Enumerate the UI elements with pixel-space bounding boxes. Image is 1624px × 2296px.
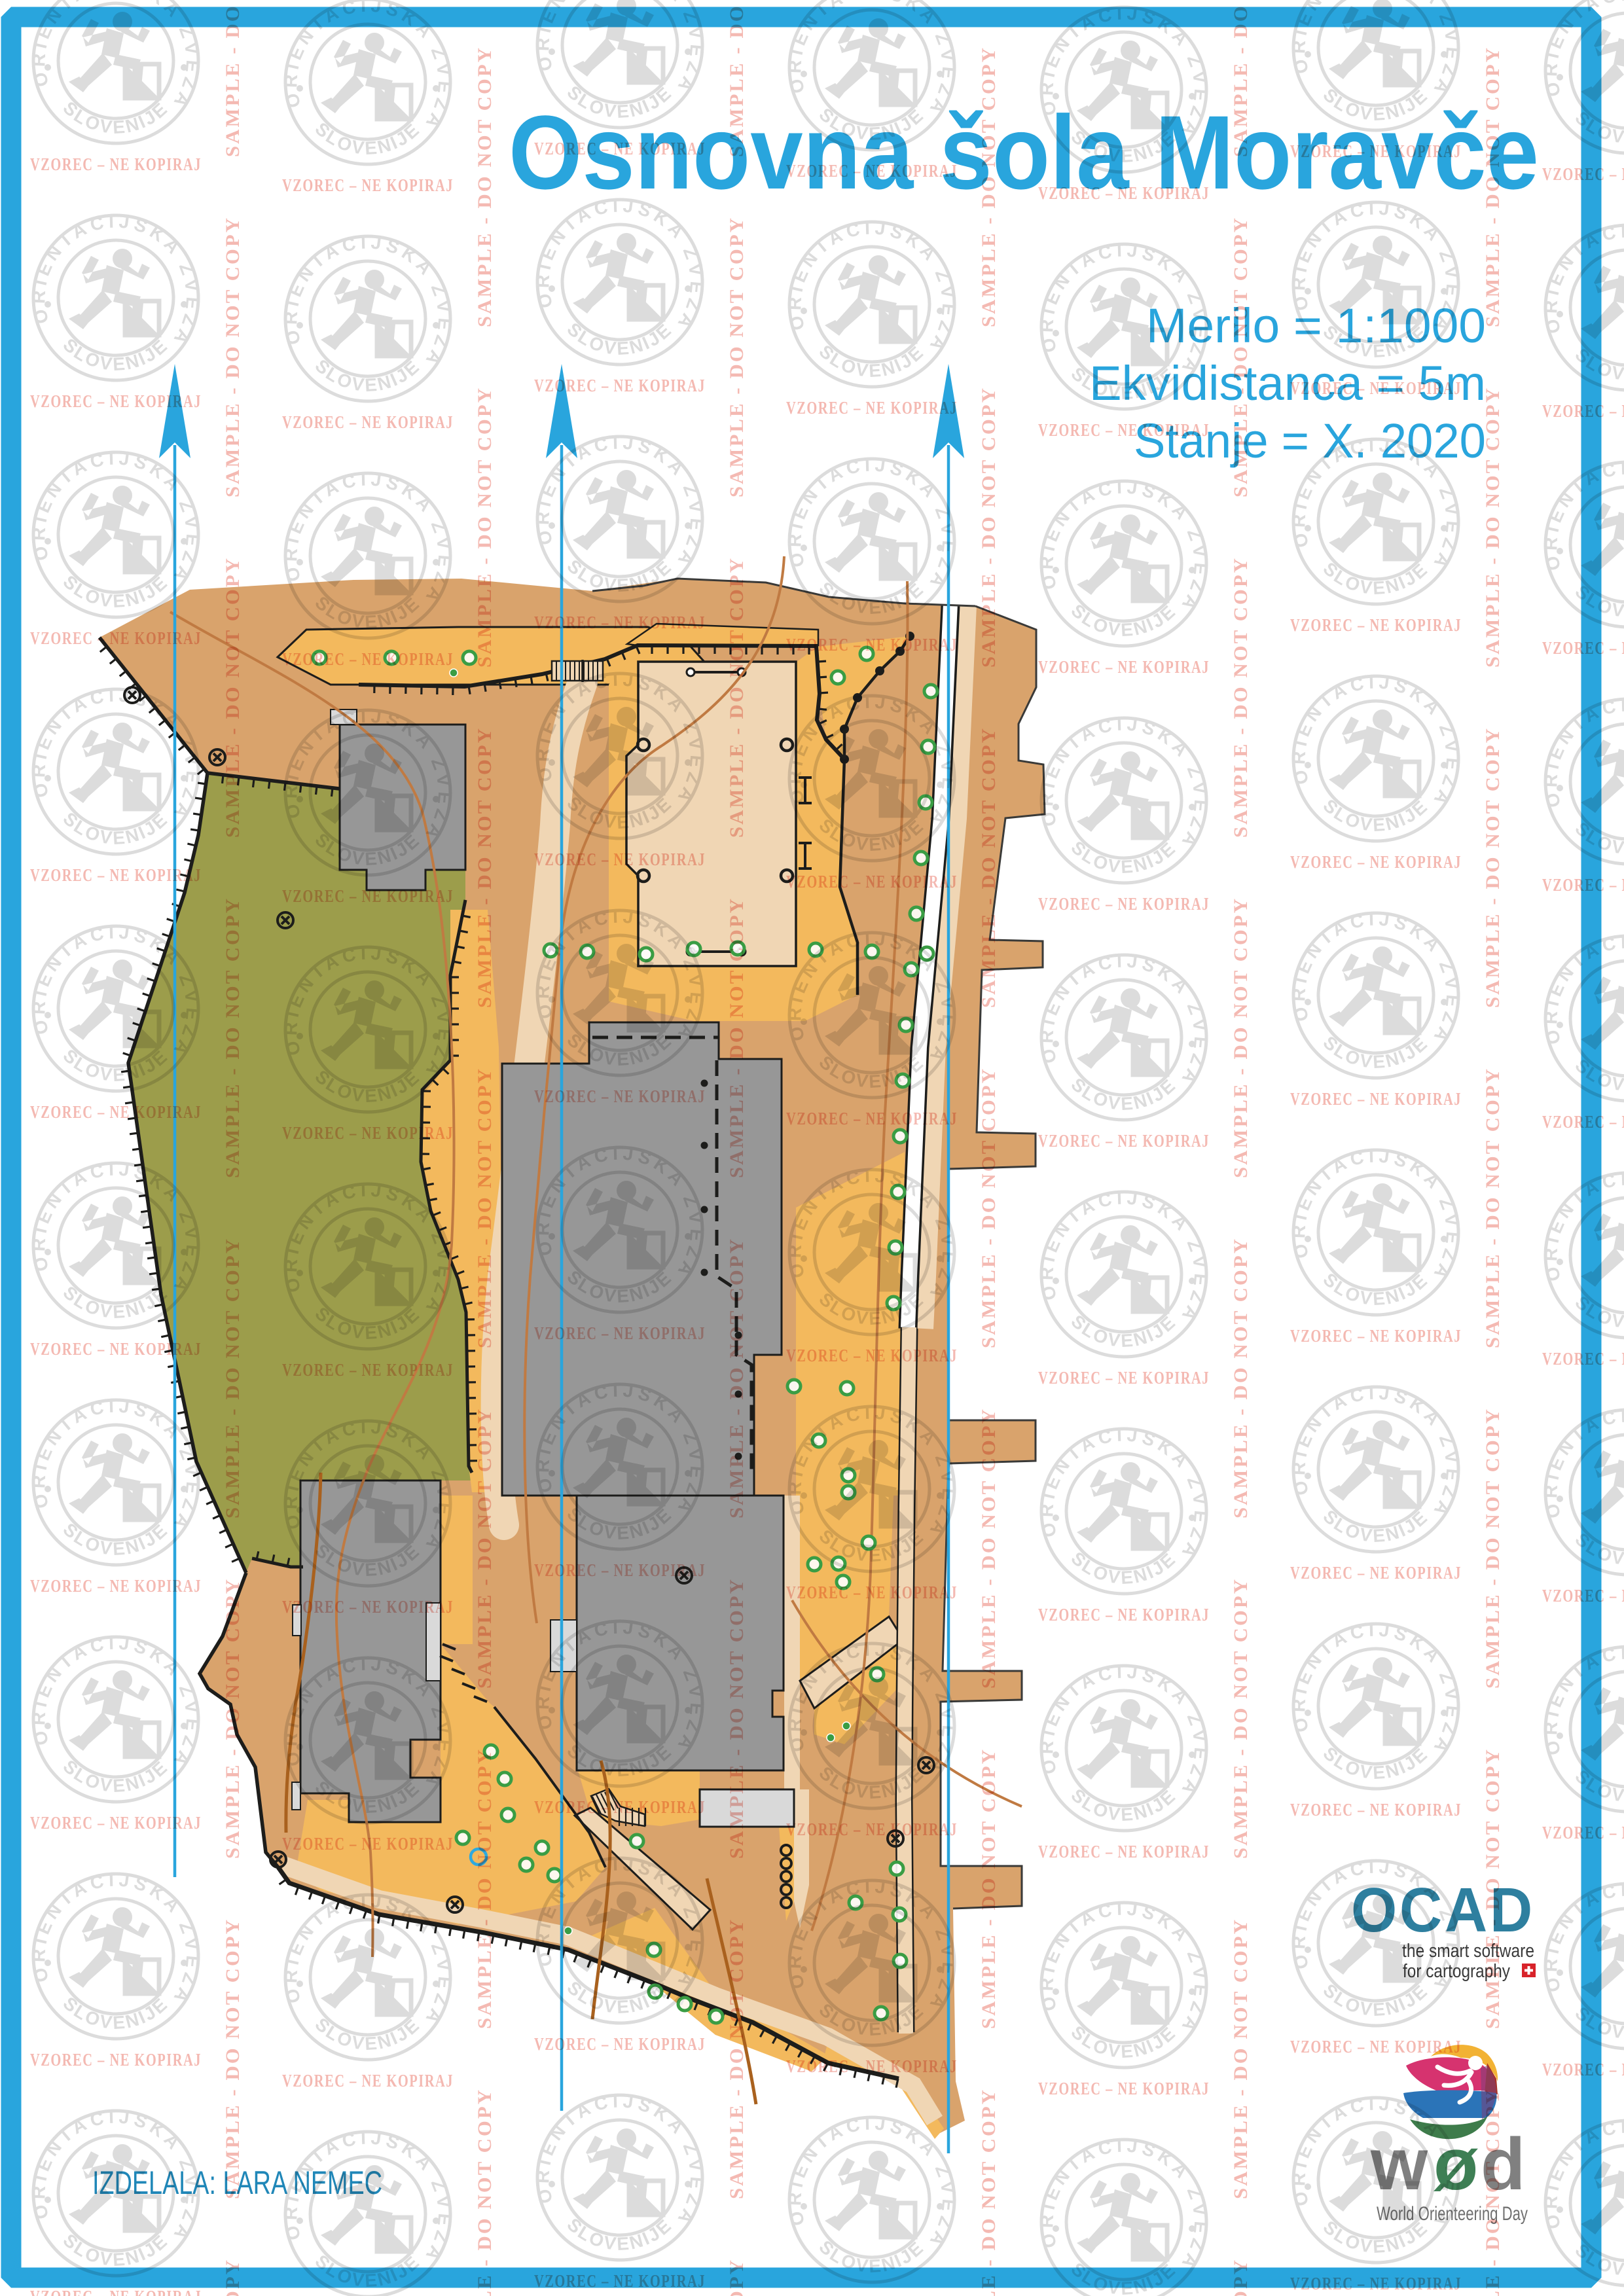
svg-text:VZOREC – NE KOPIRAJ: VZOREC – NE KOPIRAJ <box>534 1323 706 1343</box>
svg-text:VZOREC – NE KOPIRAJ: VZOREC – NE KOPIRAJ <box>534 1797 706 1817</box>
svg-text:SAMPLE - DO NOT COPY: SAMPLE - DO NOT COPY <box>1230 556 1252 838</box>
svg-text:VZOREC – NE KOPIRAJ: VZOREC – NE KOPIRAJ <box>1542 2060 1624 2079</box>
svg-text:SAMPLE - DO NOT COPY: SAMPLE - DO NOT COPY <box>222 0 244 157</box>
svg-text:VZOREC – NE KOPIRAJ: VZOREC – NE KOPIRAJ <box>1290 2037 1462 2056</box>
svg-text:SAMPLE - DO NOT COPY: SAMPLE - DO NOT COPY <box>474 386 496 668</box>
svg-text:SAMPLE - DO NOT COPY: SAMPLE - DO NOT COPY <box>726 216 748 497</box>
svg-text:SAMPLE - DO NOT COPY: SAMPLE - DO NOT COPY <box>222 1577 244 1859</box>
svg-text:VZOREC – NE KOPIRAJ: VZOREC – NE KOPIRAJ <box>1038 894 1210 914</box>
svg-text:VZOREC – NE KOPIRAJ: VZOREC – NE KOPIRAJ <box>282 1360 454 1380</box>
svg-text:VZOREC – NE KOPIRAJ: VZOREC – NE KOPIRAJ <box>1542 875 1624 895</box>
svg-text:VZOREC – NE KOPIRAJ: VZOREC – NE KOPIRAJ <box>1542 1112 1624 1132</box>
svg-text:VZOREC – NE KOPIRAJ: VZOREC – NE KOPIRAJ <box>786 1820 958 1839</box>
svg-text:VZOREC – NE KOPIRAJ: VZOREC – NE KOPIRAJ <box>282 175 454 195</box>
svg-text:SAMPLE - DO NOT COPY: SAMPLE - DO NOT COPY <box>1230 897 1252 1178</box>
svg-text:VZOREC – NE KOPIRAJ: VZOREC – NE KOPIRAJ <box>1290 1089 1462 1109</box>
svg-text:VZOREC – NE KOPIRAJ: VZOREC – NE KOPIRAJ <box>282 886 454 906</box>
svg-text:SAMPLE - DO NOT COPY: SAMPLE - DO NOT COPY <box>726 2258 748 2296</box>
svg-text:VZOREC – NE KOPIRAJ: VZOREC – NE KOPIRAJ <box>1038 1605 1210 1624</box>
svg-text:SAMPLE - DO NOT COPY: SAMPLE - DO NOT COPY <box>474 1067 496 1348</box>
svg-text:VZOREC – NE KOPIRAJ: VZOREC – NE KOPIRAJ <box>786 1346 958 1365</box>
svg-text:VZOREC – NE KOPIRAJ: VZOREC – NE KOPIRAJ <box>786 2293 958 2296</box>
svg-text:SAMPLE - DO NOT COPY: SAMPLE - DO NOT COPY <box>978 386 1000 668</box>
svg-text:SAMPLE - DO NOT COPY: SAMPLE - DO NOT COPY <box>726 556 748 838</box>
svg-text:VZOREC – NE KOPIRAJ: VZOREC – NE KOPIRAJ <box>1290 141 1462 161</box>
svg-text:SAMPLE - DO NOT COPY: SAMPLE - DO NOT COPY <box>1230 2258 1252 2296</box>
svg-text:VZOREC – NE KOPIRAJ: VZOREC – NE KOPIRAJ <box>30 2287 202 2296</box>
svg-text:VZOREC – NE KOPIRAJ: VZOREC – NE KOPIRAJ <box>534 2034 706 2054</box>
svg-text:VZOREC – NE KOPIRAJ: VZOREC – NE KOPIRAJ <box>1542 1349 1624 1369</box>
svg-text:VZOREC – NE KOPIRAJ: VZOREC – NE KOPIRAJ <box>282 1123 454 1143</box>
svg-text:SAMPLE - DO NOT COPY: SAMPLE - DO NOT COPY <box>978 1067 1000 1348</box>
svg-text:SAMPLE - DO NOT COPY: SAMPLE - DO NOT COPY <box>222 556 244 838</box>
svg-text:SAMPLE - DO NOT COPY: SAMPLE - DO NOT COPY <box>474 726 496 1008</box>
svg-text:VZOREC – NE KOPIRAJ: VZOREC – NE KOPIRAJ <box>282 1597 454 1617</box>
svg-text:SAMPLE - DO NOT COPY: SAMPLE - DO NOT COPY <box>1482 1407 1504 1689</box>
svg-text:the smart software: the smart software <box>1402 1941 1534 1962</box>
svg-text:VZOREC – NE KOPIRAJ: VZOREC – NE KOPIRAJ <box>786 1109 958 1128</box>
svg-text:VZOREC – NE KOPIRAJ: VZOREC – NE KOPIRAJ <box>282 412 454 432</box>
svg-text:SAMPLE - DO NOT COPY: SAMPLE - DO NOT COPY <box>222 1918 244 2199</box>
svg-text:SAMPLE - DO NOT COPY: SAMPLE - DO NOT COPY <box>1482 1067 1504 1348</box>
svg-text:SAMPLE - DO NOT COPY: SAMPLE - DO NOT COPY <box>1230 1577 1252 1859</box>
svg-text:SAMPLE - DO NOT COPY: SAMPLE - DO NOT COPY <box>978 1748 1000 2029</box>
svg-text:VZOREC – NE KOPIRAJ: VZOREC – NE KOPIRAJ <box>1290 1800 1462 1820</box>
svg-text:SAMPLE - DO NOT COPY: SAMPLE - DO NOT COPY <box>726 1918 748 2199</box>
svg-text:SAMPLE - DO NOT COPY: SAMPLE - DO NOT COPY <box>1482 726 1504 1008</box>
svg-text:VZOREC – NE KOPIRAJ: VZOREC – NE KOPIRAJ <box>786 872 958 891</box>
svg-text:VZOREC – NE KOPIRAJ: VZOREC – NE KOPIRAJ <box>1038 1842 1210 1861</box>
svg-text:SAMPLE - DO NOT COPY: SAMPLE - DO NOT COPY <box>474 2088 496 2296</box>
svg-text:VZOREC – NE KOPIRAJ: VZOREC – NE KOPIRAJ <box>786 1583 958 1602</box>
svg-text:SAMPLE - DO NOT COPY: SAMPLE - DO NOT COPY <box>1230 1237 1252 1518</box>
svg-text:SAMPLE - DO NOT COPY: SAMPLE - DO NOT COPY <box>222 897 244 1178</box>
svg-text:VZOREC – NE KOPIRAJ: VZOREC – NE KOPIRAJ <box>30 391 202 411</box>
svg-text:VZOREC – NE KOPIRAJ: VZOREC – NE KOPIRAJ <box>1290 852 1462 872</box>
svg-text:SAMPLE - DO NOT COPY: SAMPLE - DO NOT COPY <box>222 216 244 497</box>
svg-text:VZOREC – NE KOPIRAJ: VZOREC – NE KOPIRAJ <box>1542 1586 1624 1605</box>
svg-text:VZOREC – NE KOPIRAJ: VZOREC – NE KOPIRAJ <box>1038 1368 1210 1388</box>
svg-text:VZOREC – NE KOPIRAJ: VZOREC – NE KOPIRAJ <box>534 139 706 158</box>
svg-text:SAMPLE - DO NOT COPY: SAMPLE - DO NOT COPY <box>1482 2088 1504 2296</box>
svg-text:VZOREC – NE KOPIRAJ: VZOREC – NE KOPIRAJ <box>786 161 958 181</box>
svg-text:SAMPLE - DO NOT COPY: SAMPLE - DO NOT COPY <box>1482 386 1504 668</box>
svg-text:VZOREC – NE KOPIRAJ: VZOREC – NE KOPIRAJ <box>1290 615 1462 635</box>
svg-text:VZOREC – NE KOPIRAJ: VZOREC – NE KOPIRAJ <box>534 613 706 632</box>
svg-text:SAMPLE - DO NOT COPY: SAMPLE - DO NOT COPY <box>978 1407 1000 1689</box>
svg-text:VZOREC – NE KOPIRAJ: VZOREC – NE KOPIRAJ <box>282 2071 454 2090</box>
svg-text:VZOREC – NE KOPIRAJ: VZOREC – NE KOPIRAJ <box>30 865 202 885</box>
svg-text:VZOREC – NE KOPIRAJ: VZOREC – NE KOPIRAJ <box>1290 1326 1462 1346</box>
svg-text:SAMPLE - DO NOT COPY: SAMPLE - DO NOT COPY <box>474 1407 496 1689</box>
svg-text:VZOREC – NE KOPIRAJ: VZOREC – NE KOPIRAJ <box>1290 1563 1462 1583</box>
svg-text:SAMPLE - DO NOT COPY: SAMPLE - DO NOT COPY <box>474 46 496 327</box>
svg-text:VZOREC – NE KOPIRAJ: VZOREC – NE KOPIRAJ <box>786 635 958 655</box>
svg-text:VZOREC – NE KOPIRAJ: VZOREC – NE KOPIRAJ <box>534 376 706 395</box>
svg-text:VZOREC – NE KOPIRAJ: VZOREC – NE KOPIRAJ <box>282 1834 454 1854</box>
svg-text:VZOREC – NE KOPIRAJ: VZOREC – NE KOPIRAJ <box>1542 401 1624 421</box>
svg-text:VZOREC – NE KOPIRAJ: VZOREC – NE KOPIRAJ <box>1038 657 1210 677</box>
svg-text:SAMPLE - DO NOT COPY: SAMPLE - DO NOT COPY <box>1230 1918 1252 2199</box>
svg-text:SAMPLE - DO NOT COPY: SAMPLE - DO NOT COPY <box>978 2088 1000 2296</box>
svg-text:SAMPLE - DO NOT COPY: SAMPLE - DO NOT COPY <box>726 1237 748 1518</box>
svg-text:SAMPLE - DO NOT COPY: SAMPLE - DO NOT COPY <box>222 1237 244 1518</box>
svg-text:VZOREC – NE KOPIRAJ: VZOREC – NE KOPIRAJ <box>1542 164 1624 184</box>
svg-text:SAMPLE - DO NOT COPY: SAMPLE - DO NOT COPY <box>726 897 748 1178</box>
svg-text:VZOREC – NE KOPIRAJ: VZOREC – NE KOPIRAJ <box>282 649 454 669</box>
svg-text:SAMPLE - DO NOT COPY: SAMPLE - DO NOT COPY <box>1482 1748 1504 2029</box>
svg-text:VZOREC – NE KOPIRAJ: VZOREC – NE KOPIRAJ <box>30 154 202 174</box>
svg-text:VZOREC – NE KOPIRAJ: VZOREC – NE KOPIRAJ <box>1038 183 1210 203</box>
svg-text:SAMPLE - DO NOT COPY: SAMPLE - DO NOT COPY <box>222 2258 244 2296</box>
svg-text:VZOREC – NE KOPIRAJ: VZOREC – NE KOPIRAJ <box>534 1560 706 1580</box>
svg-text:SAMPLE - DO NOT COPY: SAMPLE - DO NOT COPY <box>726 1577 748 1859</box>
svg-text:VZOREC – NE KOPIRAJ: VZOREC – NE KOPIRAJ <box>1542 1823 1624 1842</box>
svg-text:SAMPLE - DO NOT COPY: SAMPLE - DO NOT COPY <box>978 726 1000 1008</box>
svg-text:VZOREC – NE KOPIRAJ: VZOREC – NE KOPIRAJ <box>1290 378 1462 398</box>
svg-text:VZOREC – NE KOPIRAJ: VZOREC – NE KOPIRAJ <box>786 398 958 418</box>
svg-text:VZOREC – NE KOPIRAJ: VZOREC – NE KOPIRAJ <box>786 2056 958 2076</box>
svg-text:SAMPLE - DO NOT COPY: SAMPLE - DO NOT COPY <box>1482 46 1504 327</box>
svg-text:VZOREC – NE KOPIRAJ: VZOREC – NE KOPIRAJ <box>30 1102 202 1122</box>
svg-text:VZOREC – NE KOPIRAJ: VZOREC – NE KOPIRAJ <box>534 2271 706 2291</box>
svg-text:VZOREC – NE KOPIRAJ: VZOREC – NE KOPIRAJ <box>30 1813 202 1833</box>
svg-text:VZOREC – NE KOPIRAJ: VZOREC – NE KOPIRAJ <box>534 850 706 869</box>
svg-text:VZOREC – NE KOPIRAJ: VZOREC – NE KOPIRAJ <box>534 1086 706 1106</box>
svg-text:VZOREC – NE KOPIRAJ: VZOREC – NE KOPIRAJ <box>30 628 202 648</box>
svg-text:SAMPLE - DO NOT COPY: SAMPLE - DO NOT COPY <box>1230 0 1252 157</box>
svg-text:SAMPLE - DO NOT COPY: SAMPLE - DO NOT COPY <box>978 46 1000 327</box>
svg-text:VZOREC – NE KOPIRAJ: VZOREC – NE KOPIRAJ <box>30 1576 202 1596</box>
svg-text:VZOREC – NE KOPIRAJ: VZOREC – NE KOPIRAJ <box>30 2050 202 2070</box>
svg-text:VZOREC – NE KOPIRAJ: VZOREC – NE KOPIRAJ <box>1038 2079 1210 2098</box>
svg-text:VZOREC – NE KOPIRAJ: VZOREC – NE KOPIRAJ <box>1038 1131 1210 1151</box>
svg-text:VZOREC – NE KOPIRAJ: VZOREC – NE KOPIRAJ <box>1038 420 1210 440</box>
svg-text:SAMPLE - DO NOT COPY: SAMPLE - DO NOT COPY <box>726 0 748 157</box>
svg-text:VZOREC – NE KOPIRAJ: VZOREC – NE KOPIRAJ <box>1542 638 1624 658</box>
svg-text:VZOREC – NE KOPIRAJ: VZOREC – NE KOPIRAJ <box>1290 2274 1462 2293</box>
svg-text:VZOREC – NE KOPIRAJ: VZOREC – NE KOPIRAJ <box>30 1339 202 1359</box>
svg-text:SAMPLE - DO NOT COPY: SAMPLE - DO NOT COPY <box>474 1748 496 2029</box>
svg-text:SAMPLE - DO NOT COPY: SAMPLE - DO NOT COPY <box>1230 216 1252 497</box>
